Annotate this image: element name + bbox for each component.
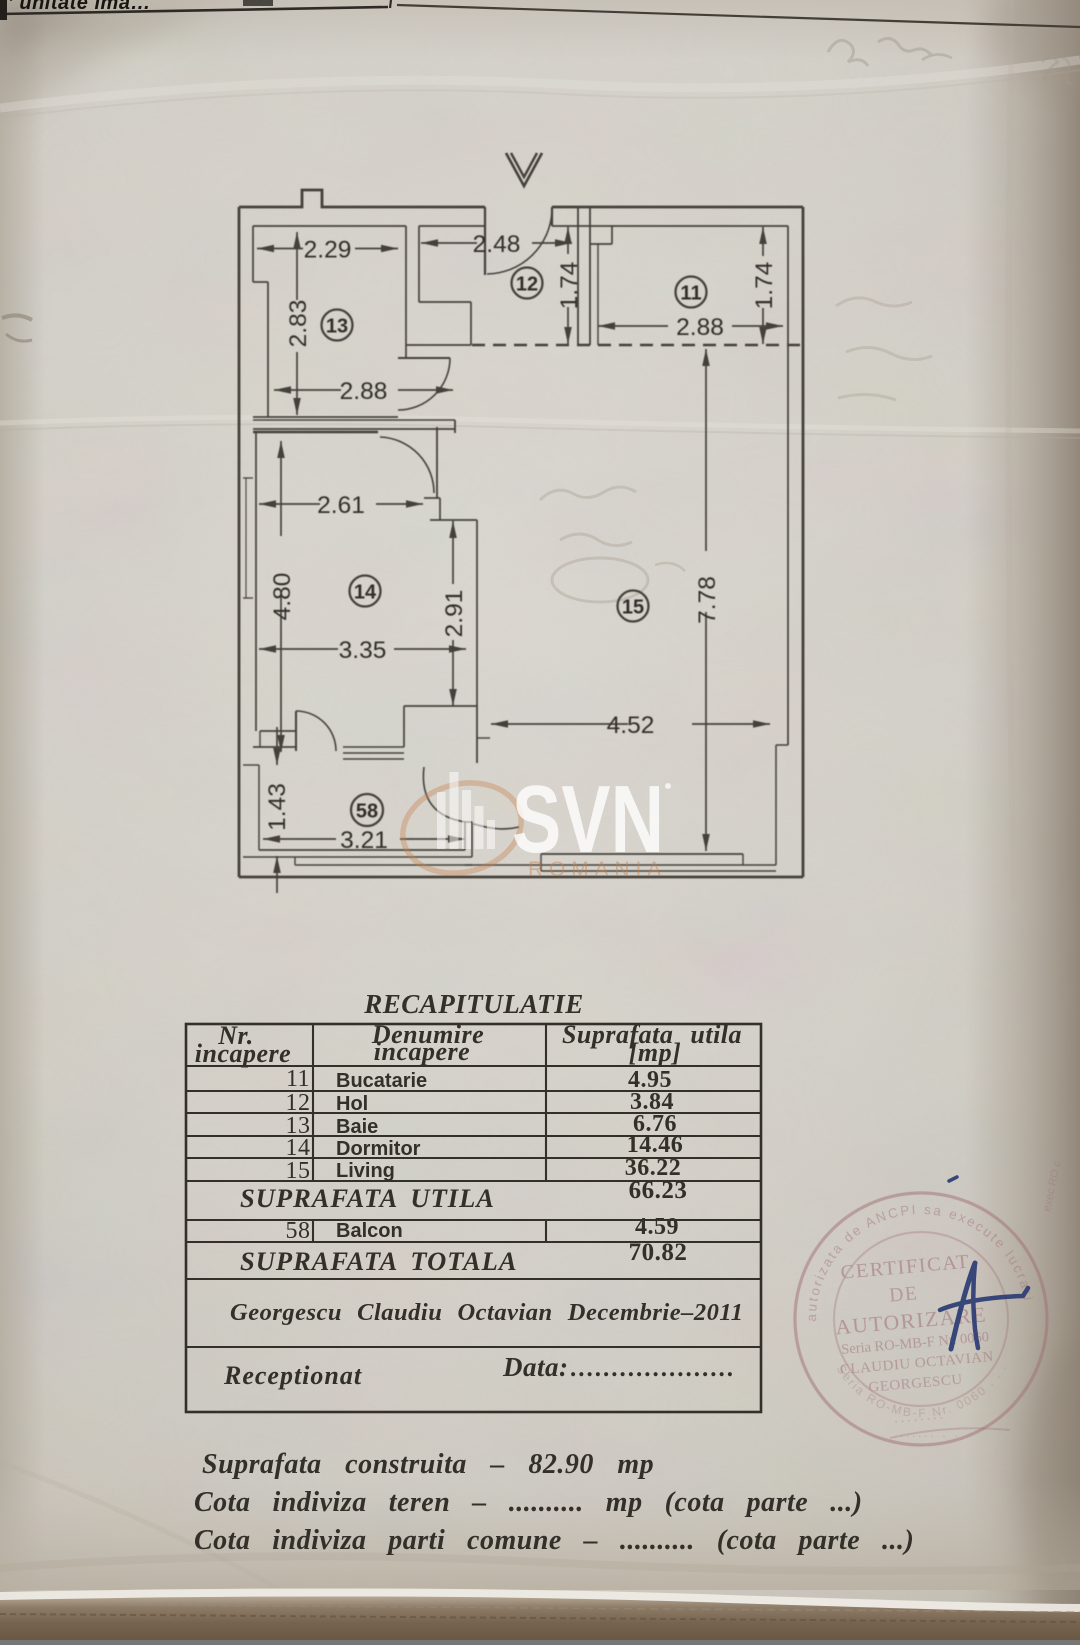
- svg-text:13: 13: [326, 316, 348, 338]
- svg-text:Living: Living: [336, 1160, 395, 1182]
- svg-text:2.83: 2.83: [285, 300, 312, 348]
- svg-text:Suprafata construita – 82: Suprafata construita – 82.90 mp: [202, 1449, 654, 1480]
- svg-text:2.88: 2.88: [340, 378, 388, 405]
- svg-text:14: 14: [354, 582, 377, 604]
- svg-text:incapere: incapere: [374, 1037, 470, 1066]
- svg-text:15: 15: [622, 597, 644, 619]
- svg-text:2.91: 2.91: [441, 590, 468, 638]
- svg-text:2.61: 2.61: [317, 492, 365, 519]
- svg-text:66.23: 66.23: [629, 1177, 688, 1204]
- svg-text:Georgescu Claudiu Octavian: Georgescu Claudiu Octavian Decembrie–201…: [230, 1299, 744, 1326]
- svg-text:Bucatarie: Bucatarie: [336, 1070, 427, 1092]
- svg-text:Cota indiviza parti comune: Cota indiviza parti comune – .......... …: [194, 1525, 914, 1556]
- svg-text:DE: DE: [888, 1283, 919, 1306]
- svg-text:incapere: incapere: [195, 1039, 291, 1068]
- svg-text:...... . .: ...... . .: [900, 1428, 961, 1440]
- svg-text:58: 58: [356, 801, 378, 823]
- svg-text:2.29: 2.29: [304, 237, 352, 264]
- svg-text:4.52: 4.52: [607, 712, 655, 739]
- svg-text:....................: ....................: [570, 1355, 735, 1382]
- svg-text:4.59: 4.59: [635, 1214, 679, 1240]
- svg-text:Cota indiviza teren – ....: Cota indiviza teren – .......... mp (cot…: [194, 1487, 863, 1518]
- svg-text:7.78: 7.78: [694, 576, 721, 624]
- svg-text:’ unitate ima…: ’ unitate ima…: [8, 0, 151, 14]
- svg-text:58: 58: [286, 1218, 311, 1244]
- svg-text:70.82: 70.82: [629, 1239, 688, 1266]
- svg-text:3.21: 3.21: [340, 827, 388, 854]
- svg-text:Baie: Baie: [336, 1116, 378, 1138]
- svg-text:Dormitor: Dormitor: [336, 1138, 421, 1160]
- svg-text:Data:: Data:: [502, 1352, 569, 1382]
- svg-text:1.74: 1.74: [751, 262, 778, 310]
- svg-text:ROMANIA: ROMANIA: [528, 857, 667, 881]
- svg-text:Balcon: Balcon: [336, 1220, 403, 1242]
- svg-text:12: 12: [516, 274, 538, 296]
- svg-text:1.43: 1.43: [264, 783, 291, 831]
- svg-text:Receptionat: Receptionat: [223, 1361, 362, 1390]
- svg-text:1.74: 1.74: [556, 262, 583, 310]
- svg-text:[mp]: [mp]: [629, 1038, 682, 1067]
- svg-text:11: 11: [286, 1066, 310, 1092]
- svg-text:RECAPITULATIE: RECAPITULATIE: [363, 989, 584, 1019]
- svg-text:4.80: 4.80: [269, 573, 296, 621]
- svg-text:3.35: 3.35: [339, 637, 387, 664]
- svg-text:SUPRAFATA TOTALA: SUPRAFATA TOTALA: [240, 1246, 518, 1276]
- svg-text:2.48: 2.48: [473, 231, 521, 258]
- svg-text:2.88: 2.88: [676, 314, 724, 341]
- svg-text:Hol: Hol: [336, 1093, 368, 1115]
- svg-text:11: 11: [680, 283, 701, 305]
- svg-text:15: 15: [286, 1158, 311, 1184]
- svg-text:SUPRAFATA UTILA: SUPRAFATA UTILA: [240, 1183, 495, 1213]
